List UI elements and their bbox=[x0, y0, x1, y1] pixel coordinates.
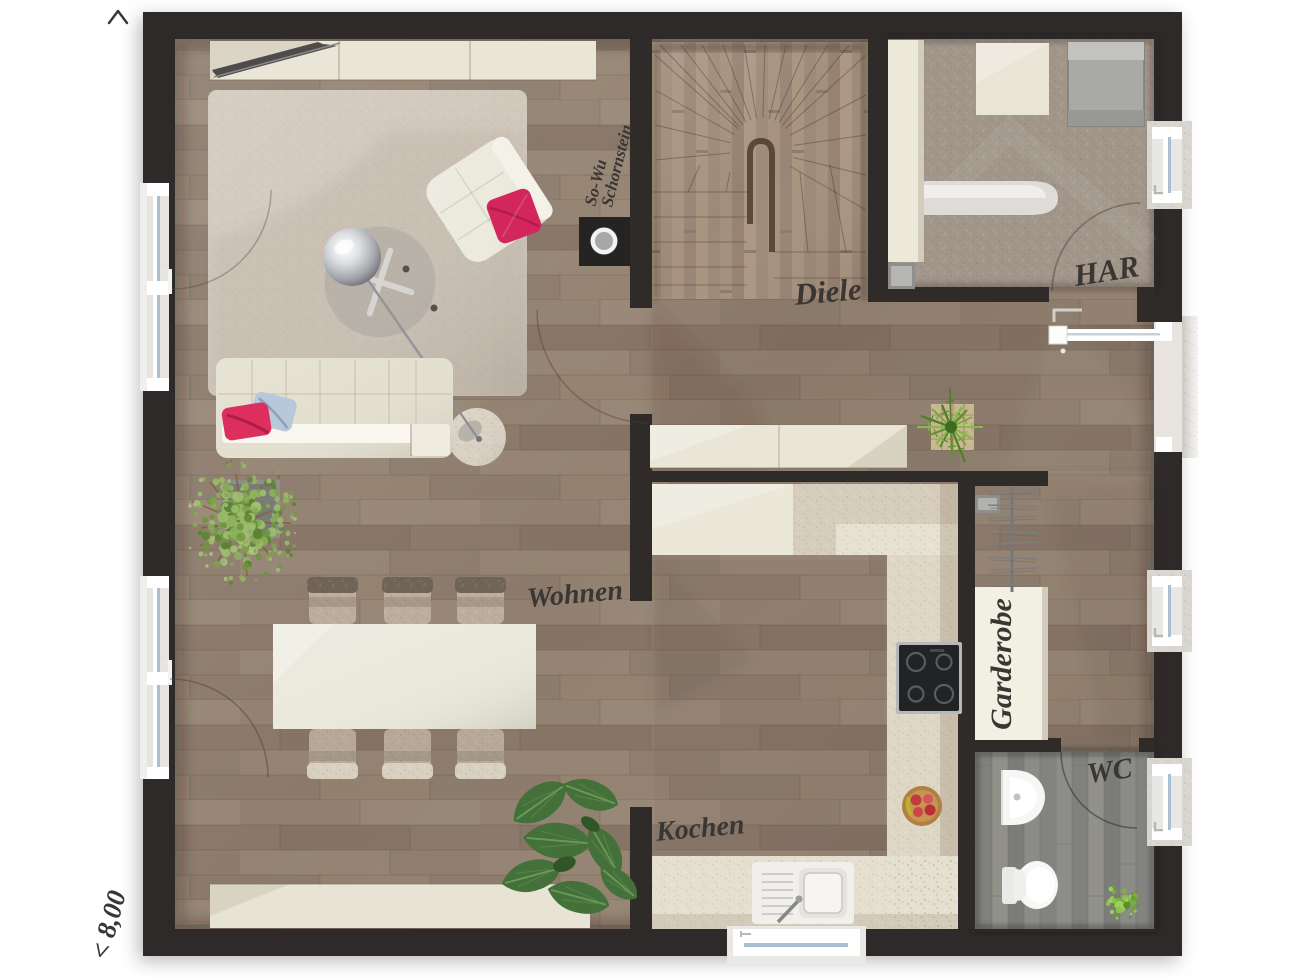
svg-text:Diele: Diele bbox=[792, 271, 863, 312]
svg-text:Garderobe: Garderobe bbox=[985, 598, 1018, 730]
svg-text:WC: WC bbox=[1085, 752, 1135, 790]
